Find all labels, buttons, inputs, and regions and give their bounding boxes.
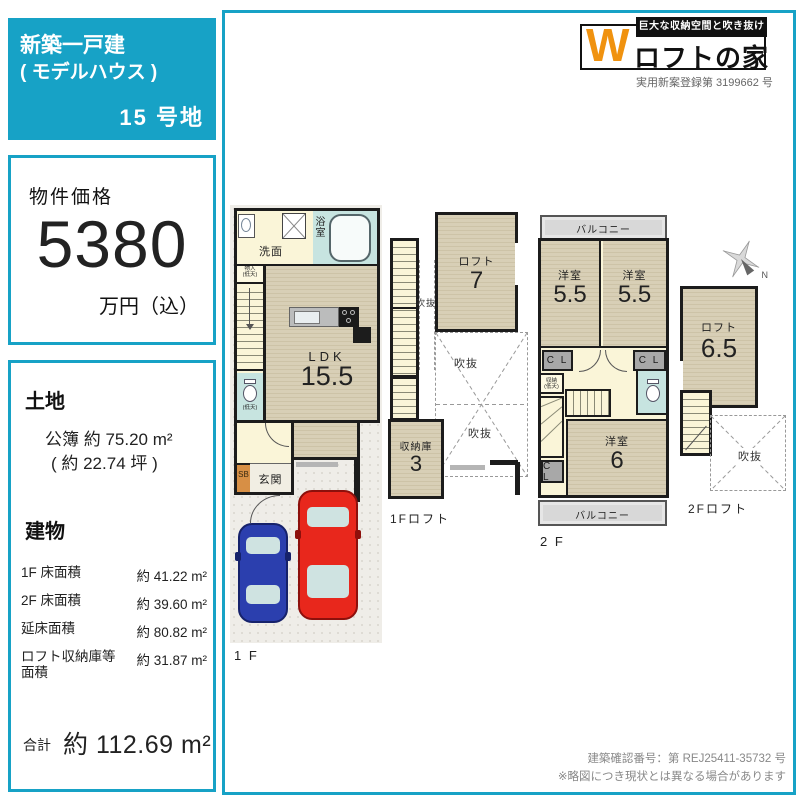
property-type: 新築一戸建 (20, 32, 204, 60)
caption-2floft: 2Fロフト (688, 500, 748, 517)
porch-step (296, 462, 338, 467)
bathtub-icon (329, 214, 371, 262)
loft7-room: ロフト 7 (435, 212, 518, 332)
row-label: 1F 床面積 (21, 565, 81, 585)
kitchen-counter (289, 307, 339, 327)
stairs-1floft (390, 238, 419, 378)
land-building-box: 土地 公簿 約 75.20 m² ( 約 22.74 坪 ) 建物 1F 床面積… (8, 360, 216, 792)
wall (263, 264, 266, 420)
floorplan-2f: バルコニー 洋室 5.5 洋室 5.5 C L C L 収納 (低天) (538, 210, 673, 555)
total-label: 合計 (23, 735, 51, 755)
logo-tagline: 巨大な収納空間と吹き抜け (636, 17, 767, 37)
building-row: 延床面積 約 80.82 m² (21, 621, 207, 641)
void-strip (419, 260, 435, 370)
confirmation-number: 建築確認番号：第 REJ25411-35732 号 (360, 750, 786, 768)
floorplan-2f-loft: N ロフト 6.5 吹抜 2Fロフト (680, 228, 798, 520)
storage3-room: 収納庫 3 (388, 419, 444, 499)
land-title: 土地 (25, 385, 65, 414)
ldk-lower (291, 420, 360, 460)
row-label: ロフト収納庫等面積 (21, 649, 116, 680)
washer-icon (282, 213, 306, 239)
total-value: 約 112.69 m² (63, 725, 211, 761)
loft-size: 6.5 (683, 335, 755, 361)
loft-size: 7 (438, 269, 515, 293)
car-blue (238, 523, 288, 623)
bedroom-size: 5.5 (541, 283, 599, 307)
ldk-room (266, 266, 377, 420)
void-label-c: 吹抜 (468, 425, 492, 441)
bathroom-label: 浴室 (315, 217, 327, 239)
wall-fragment (515, 462, 520, 495)
logo-w-mark: W (586, 22, 629, 68)
ledge (450, 465, 485, 470)
row-value: 約 39.60 m² (136, 593, 207, 613)
door-arc (605, 350, 627, 372)
balcony-top: バルコニー (540, 215, 667, 240)
row-label: 2F 床面積 (21, 593, 81, 613)
building-title: 建物 (25, 515, 65, 544)
disclaimer: ※略図につき現状とは異なる場合があります (360, 768, 786, 786)
row-label: 延床面積 (21, 621, 75, 641)
closet-cl1: C L (542, 350, 573, 371)
land-area-tsubo: ( 約 22.74 坪 ) (51, 449, 158, 474)
land-area: 公簿 約 75.20 m² (45, 425, 173, 450)
toilet-note: (低天) (237, 405, 263, 411)
bedroom-size: 6 (568, 449, 666, 473)
shoebox: SB (237, 463, 250, 492)
storage-closet: 物入 (低天) (237, 266, 263, 284)
stairs-landing (390, 376, 419, 421)
balcony-bottom-label: バルコニー (540, 507, 665, 522)
toilet-room-2f (636, 371, 666, 415)
floorplan-1f-loft: 吹抜 ロフト 7 吹抜 吹抜 収納庫 3 1Fロフト (388, 212, 538, 532)
price-box: 物件価格 5380 万円（込） (8, 155, 216, 345)
bedroom-6: 洋室 6 (566, 419, 666, 495)
void-label: 吹抜 (737, 448, 763, 464)
row-value: 約 80.82 m² (136, 621, 207, 641)
flyer-canvas: 新築一戸建 ( モデルハウス ) 15 号地 物件価格 5380 万円（込） 土… (0, 0, 804, 804)
bedroom-55-right: 洋室 5.5 (603, 241, 666, 346)
entrance-floor: 玄関 (250, 463, 291, 492)
row-value: 約 41.22 m² (136, 565, 207, 585)
price-amount: 5380 (11, 206, 213, 282)
compass-icon: N (718, 236, 764, 282)
stairs-2floft (680, 390, 712, 456)
entrance-hall: SB 玄関 (234, 420, 294, 495)
property-title-box: 新築一戸建 ( モデルハウス ) 15 号地 (8, 18, 216, 140)
window-gap (515, 243, 518, 285)
void-area: 吹抜 吹抜 (435, 332, 528, 477)
bathroom: 浴室 (313, 211, 377, 266)
bedroom-55-left: 洋室 5.5 (541, 241, 601, 346)
building-2f: 洋室 5.5 洋室 5.5 C L C L 収納 (低天) (538, 238, 669, 498)
void-area-2floft: 吹抜 (710, 415, 786, 491)
north-label: N (762, 270, 769, 280)
basin-icon (238, 214, 255, 238)
wall (541, 346, 666, 348)
void-label-a: 吹抜 (416, 296, 436, 309)
storage-size: 3 (391, 453, 441, 475)
wall (353, 327, 371, 343)
property-subtype: ( モデルハウス ) (20, 60, 204, 86)
caption-1f: 1 F (234, 648, 259, 663)
balcony-bottom: バルコニー (538, 500, 667, 526)
logo-registration: 実用新案登録第 3199662 号 (636, 74, 773, 90)
entrance-label: 玄関 (250, 471, 291, 487)
stove-icon (339, 307, 359, 327)
closet-note: (低天) (237, 272, 263, 278)
bedroom-size: 5.5 (603, 283, 666, 307)
void-label-b: 吹抜 (454, 355, 478, 371)
caption-1floft: 1Fロフト (390, 510, 450, 527)
wall-fragment (490, 460, 518, 465)
toilet-room-1f: (低天) (237, 373, 263, 420)
price-unit: 万円（込） (99, 290, 199, 319)
car-red (298, 490, 358, 620)
door-arc (265, 423, 289, 447)
footer-note: 建築確認番号：第 REJ25411-35732 号 ※略図につき現状とは異なる場… (360, 750, 786, 787)
balcony-top-label: バルコニー (542, 221, 665, 236)
lot-number: 15 号地 (20, 100, 204, 132)
ldk-size: 15.5 (289, 363, 365, 390)
storage-note: (低天) (541, 384, 562, 390)
closet-cl2: C L (633, 350, 666, 371)
floorplan-1f: 浴室 洗面 LDK (230, 205, 382, 665)
building-row: 2F 床面積 約 39.60 m² (21, 593, 207, 613)
stairs-2f (565, 389, 611, 417)
logo-name: ロフトの家 (634, 38, 769, 75)
building-row: ロフト収納庫等面積 約 31.87 m² (21, 649, 207, 680)
washroom-label: 洗面 (259, 243, 283, 259)
stairs-1f (237, 286, 263, 371)
caption-2f: 2 F (540, 534, 565, 549)
building-1f-upper: 浴室 洗面 LDK (234, 208, 380, 423)
row-value: 約 31.87 m² (136, 649, 207, 680)
stairs-winder (541, 396, 564, 458)
storage-low: 収納 (低天) (541, 373, 564, 394)
price-label: 物件価格 (29, 182, 113, 209)
closet-cl3: C L (541, 460, 564, 483)
building-row: 1F 床面積 約 41.22 m² (21, 565, 207, 585)
door-arc (579, 350, 601, 372)
